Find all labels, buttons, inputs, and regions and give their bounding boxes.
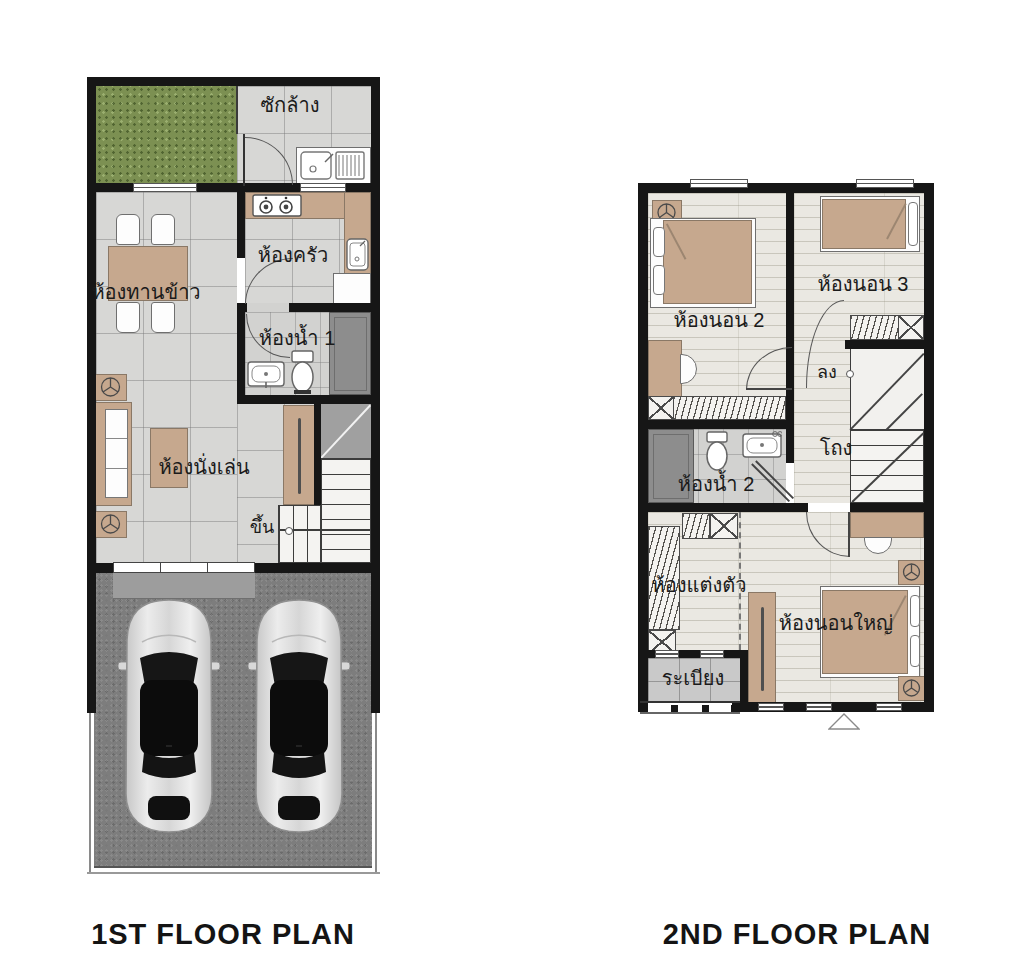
room-label-master: ห้องนอนใหญ่ [760, 612, 912, 634]
wardrobe-box [898, 315, 924, 340]
balcony-railing [640, 712, 740, 714]
wall-segment [924, 183, 934, 712]
window [655, 650, 679, 658]
window [758, 703, 784, 711]
wall-segment [850, 503, 934, 512]
room-label-bath2: ห้องน้ำ 2 [664, 473, 768, 495]
closet [682, 513, 710, 539]
window [856, 179, 914, 188]
room-label-hall: โถง [806, 437, 866, 459]
toilet-icon [704, 431, 730, 473]
window [690, 179, 748, 188]
single-bed [820, 196, 920, 252]
floor-plan-sheet: ซักล้าง ห้องครัว ห้องทานข้าว ห้องน้ำ 1 ห… [0, 0, 1024, 970]
railing-post [640, 705, 647, 712]
wardrobe-box [648, 396, 674, 420]
door-leaf [848, 512, 850, 557]
room-label-bedroom2: ห้องนอน 2 [664, 309, 774, 331]
window [700, 650, 724, 658]
dressing-table [648, 340, 682, 398]
desk [850, 512, 924, 538]
balcony-railing [640, 701, 740, 703]
railing-post [702, 705, 709, 712]
wall-segment [786, 193, 794, 340]
double-bed [650, 218, 756, 308]
floor2-title: 2ND FLOOR PLAN [647, 918, 947, 951]
fan-icon [898, 560, 926, 585]
wall-segment [638, 183, 648, 712]
bath2-sink-icon [742, 431, 782, 459]
room-label-bedroom3: ห้องนอน 3 [808, 273, 918, 295]
window [806, 703, 832, 711]
wall-segment [646, 503, 808, 512]
floor2-plan: ห้องนอน 2 ห้องนอน 3 ลง โถง ห้องน้ำ 2 ห้อ… [0, 0, 1024, 970]
wall-segment [845, 340, 934, 349]
fan-icon [898, 676, 926, 701]
door-leaf [746, 388, 792, 390]
entry-step-marker [828, 712, 860, 730]
wall-segment [648, 420, 794, 429]
room-label-dressing: ห้องแต่งตัว [646, 574, 752, 596]
wardrobe-tall [748, 592, 776, 704]
wall-segment [740, 650, 748, 712]
window [876, 703, 902, 711]
stair-start-marker [846, 370, 854, 378]
railing-post [731, 705, 738, 712]
room-label-balcony: ระเบียง [648, 667, 738, 689]
railing-post [671, 705, 678, 712]
closet-box [710, 513, 738, 539]
stairs-down-label: ลง [810, 363, 844, 383]
